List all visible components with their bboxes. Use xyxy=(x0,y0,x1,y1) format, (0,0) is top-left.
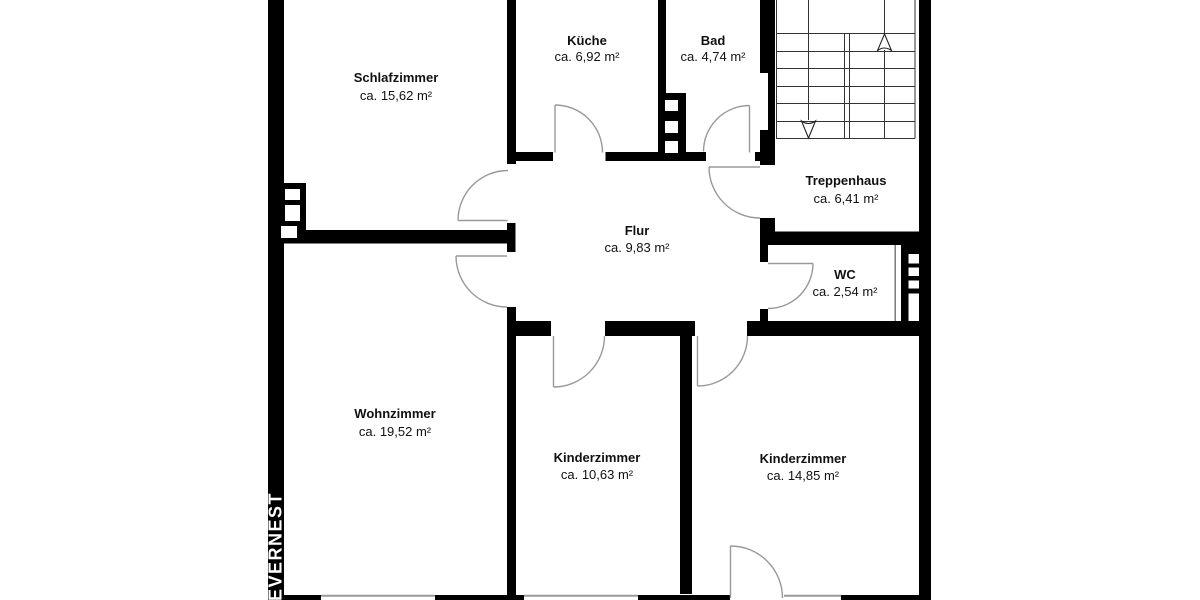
svg-text:Kinderzimmer: Kinderzimmer xyxy=(554,450,641,465)
svg-text:ca. 15,62 m²: ca. 15,62 m² xyxy=(360,88,433,103)
svg-text:ca. 6,92 m²: ca. 6,92 m² xyxy=(554,49,620,64)
svg-text:ca. 10,63 m²: ca. 10,63 m² xyxy=(561,467,634,482)
svg-text:ca. 14,85 m²: ca. 14,85 m² xyxy=(767,468,840,483)
svg-text:Treppenhaus: Treppenhaus xyxy=(806,173,887,188)
svg-text:ca. 9,83 m²: ca. 9,83 m² xyxy=(604,240,670,255)
svg-text:Flur: Flur xyxy=(625,223,650,238)
svg-text:ca. 2,54 m²: ca. 2,54 m² xyxy=(812,284,878,299)
svg-text:Bad: Bad xyxy=(701,33,726,48)
svg-text:ca. 6,41 m²: ca. 6,41 m² xyxy=(813,191,879,206)
svg-text:Schlafzimmer: Schlafzimmer xyxy=(354,70,439,85)
svg-text:Kinderzimmer: Kinderzimmer xyxy=(760,451,847,466)
svg-text:Wohnzimmer: Wohnzimmer xyxy=(354,406,435,421)
svg-text:EVERNEST: EVERNEST xyxy=(266,492,286,600)
svg-text:WC: WC xyxy=(834,267,856,282)
svg-text:ca. 19,52 m²: ca. 19,52 m² xyxy=(359,424,432,439)
svg-text:Küche: Küche xyxy=(567,33,607,48)
svg-text:ca. 4,74 m²: ca. 4,74 m² xyxy=(680,49,746,64)
